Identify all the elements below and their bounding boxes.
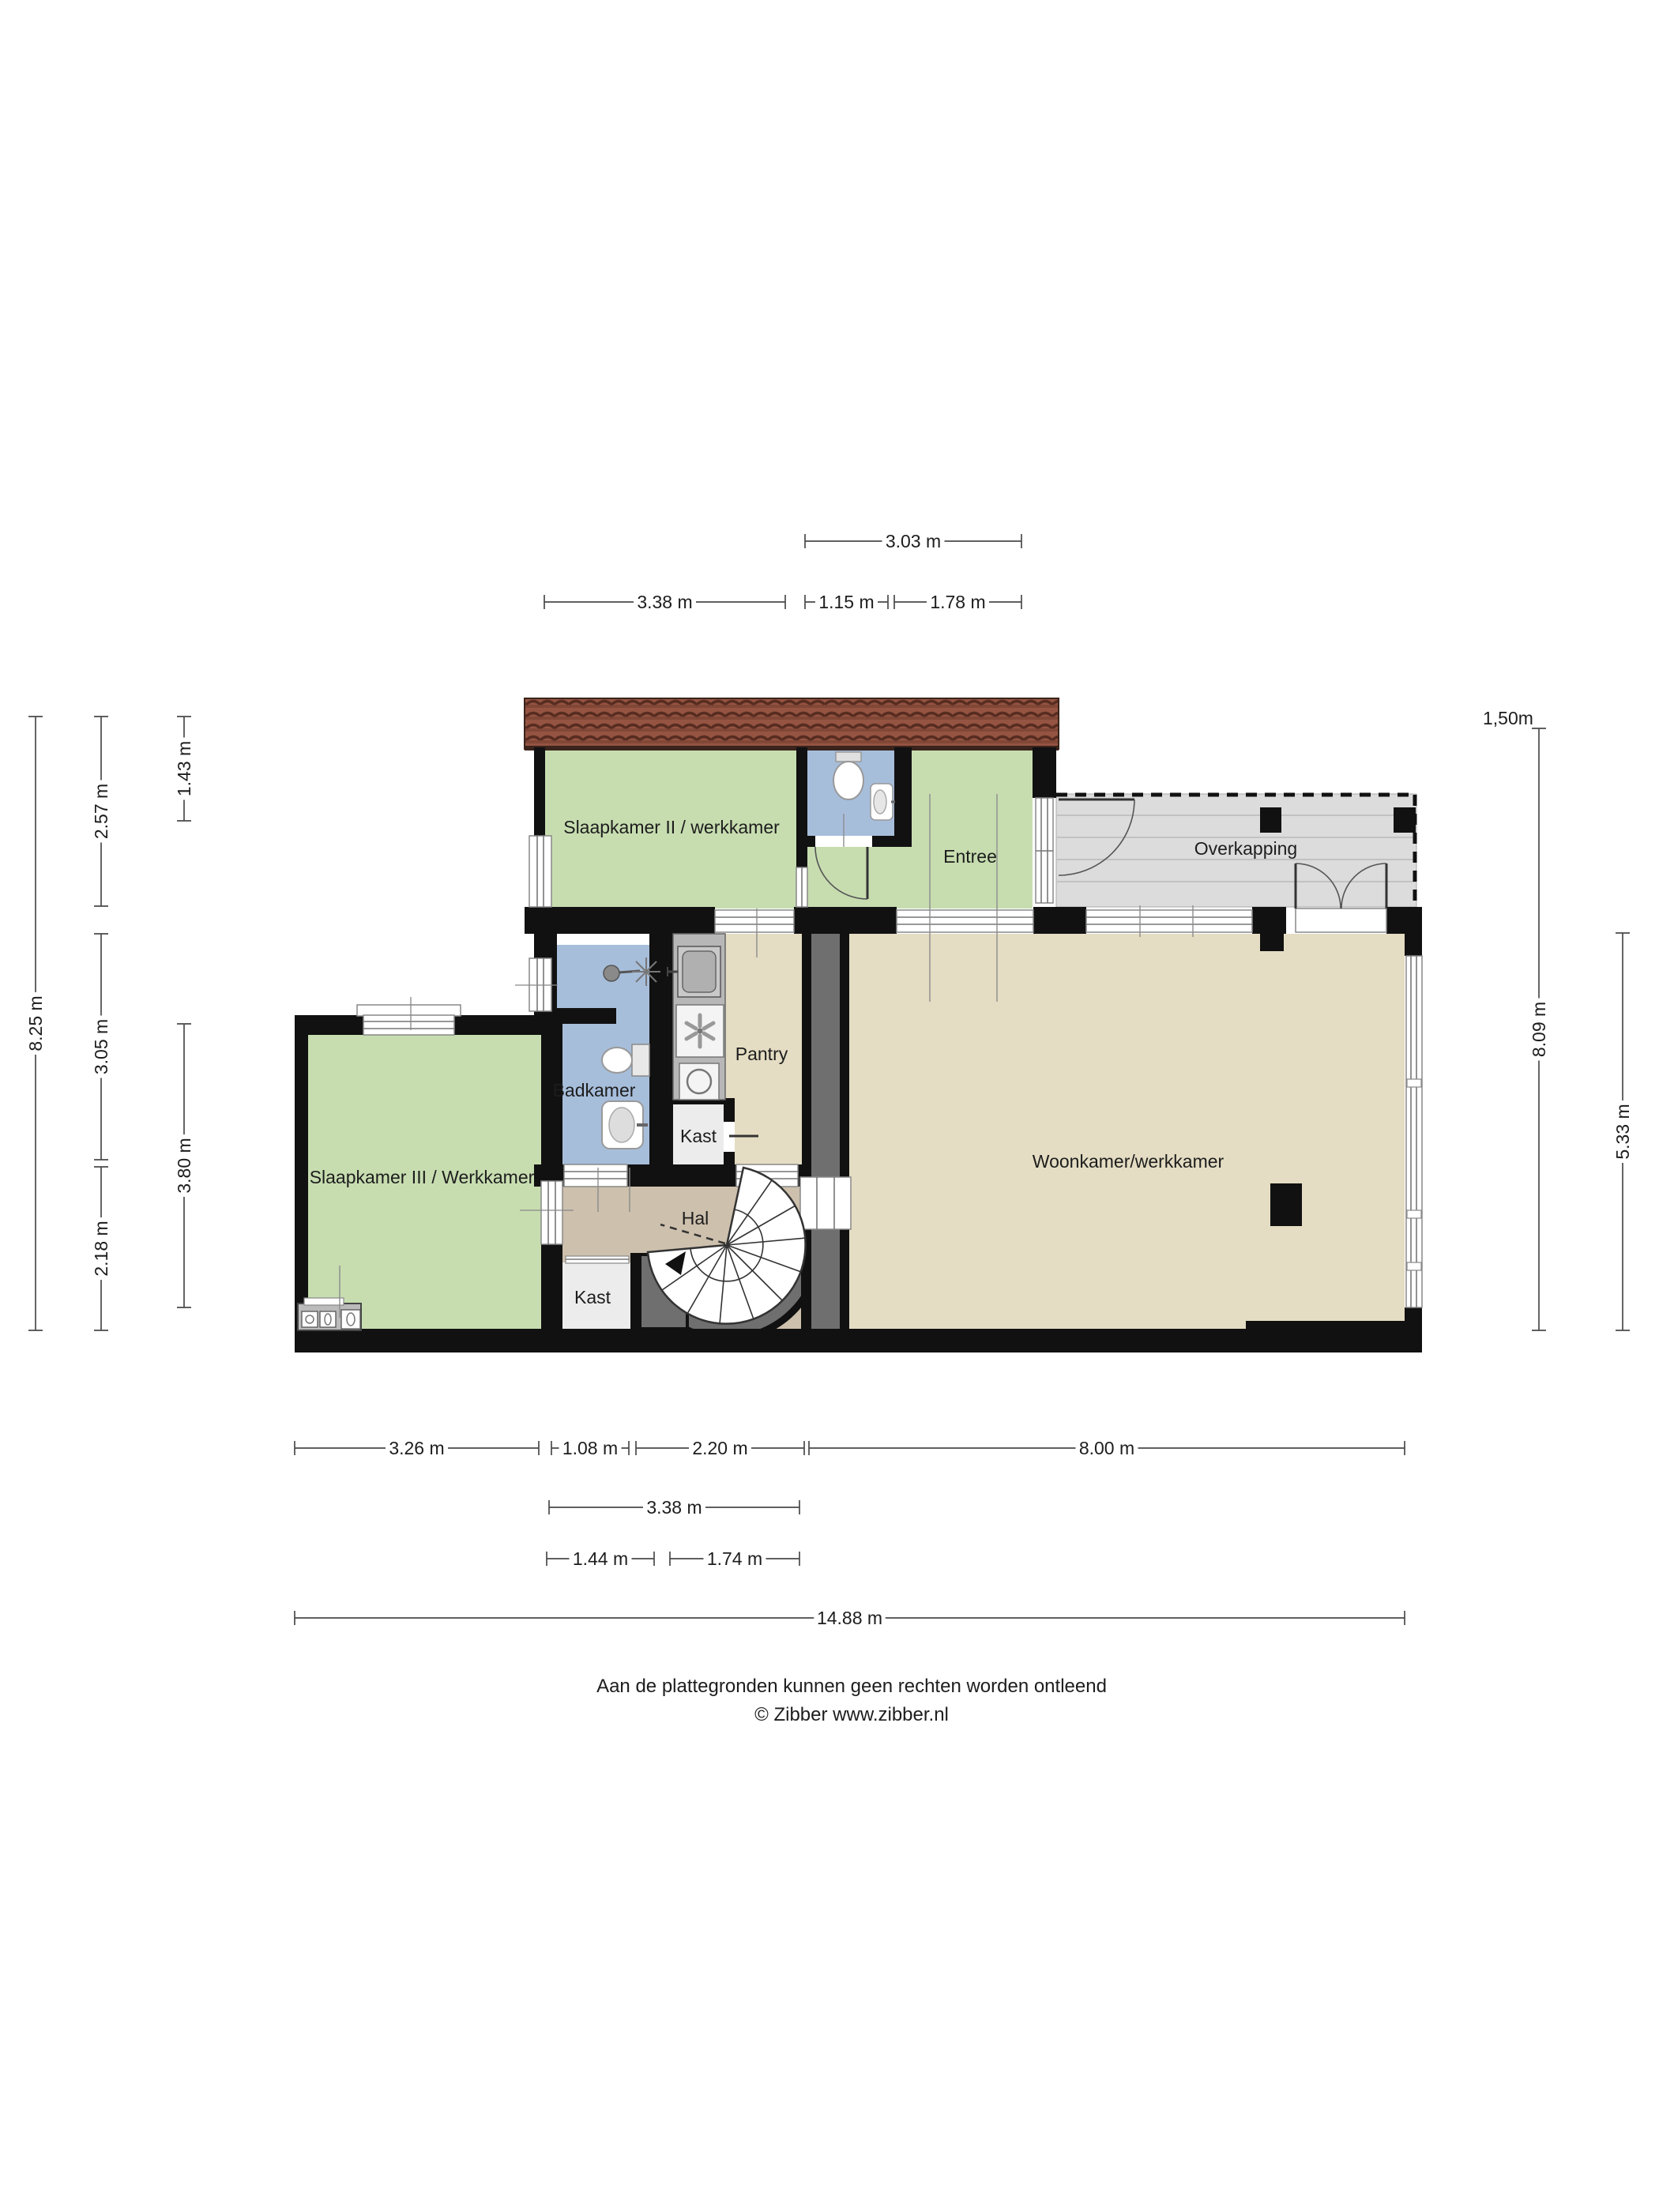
- dimension-3.26m: 3.26 m: [295, 1437, 539, 1459]
- sink-icon: [871, 784, 895, 820]
- room-label-woonkamer: Woonkamer/werkkamer: [1033, 1151, 1224, 1172]
- meter-cabinet: [298, 1298, 361, 1330]
- dim-label: 3.26 m: [389, 1438, 444, 1458]
- cooktop-icon: [676, 1005, 724, 1057]
- dimension-1.78m: 1.78 m: [894, 591, 1021, 613]
- toilet-icon: [602, 1044, 649, 1076]
- room-label-kast-hal: Kast: [574, 1287, 611, 1307]
- dim-label: 8.25 m: [25, 995, 46, 1051]
- dim-label: 3.05 m: [91, 1019, 111, 1074]
- window: [529, 836, 551, 907]
- dim-label: 3.03 m: [886, 531, 941, 551]
- kitchen-counter: [668, 934, 725, 1100]
- canopy-post: [1260, 807, 1281, 833]
- dim-label: 1.15 m: [818, 592, 874, 612]
- dimension-3.05m: 3.05 m: [90, 934, 112, 1160]
- dimension-1.08m: 1.08 m: [551, 1437, 629, 1459]
- footer-copyright: © Zibber www.zibber.nl: [754, 1704, 949, 1725]
- window: [1406, 956, 1422, 1307]
- door-opening: [566, 1256, 629, 1263]
- room-label-hal: Hal: [682, 1208, 709, 1228]
- dimension-3.38m: 3.38 m: [544, 591, 785, 613]
- dimension-5.33m: 5.33 m: [1612, 933, 1634, 1330]
- toilet-icon: [833, 752, 863, 799]
- free-dim-label: 1,50m: [1483, 708, 1533, 728]
- room-label-kast-pantry: Kast: [680, 1126, 717, 1146]
- footer-disclaimer: Aan de plattegronden kunnen geen rechten…: [596, 1676, 1107, 1697]
- dim-label: 8.00 m: [1079, 1438, 1134, 1458]
- dimension-1.43m: 1.43 m: [173, 717, 195, 821]
- room-label-overkapping: Overkapping: [1194, 838, 1297, 859]
- window: [1036, 798, 1053, 903]
- room-label-entree: Entree: [943, 846, 997, 867]
- room-label-slaapkamer3: Slaapkamer III / Werkkamer: [310, 1167, 535, 1187]
- room-entree-b: [807, 847, 912, 908]
- dim-label: 5.33 m: [1612, 1104, 1633, 1159]
- dimension-2.18m: 2.18 m: [90, 1167, 112, 1330]
- appliance-icon: [679, 1063, 719, 1100]
- dimension-2.20m: 2.20 m: [636, 1437, 804, 1459]
- dim-label: 8.09 m: [1529, 1002, 1549, 1057]
- dimension-8.00m: 8.00 m: [809, 1437, 1405, 1459]
- dim-label: 1.08 m: [562, 1438, 618, 1458]
- door-opening: [541, 1181, 562, 1244]
- floor-plan-drawing: Slaapkamer II / werkkamerEntreeOverkappi…: [0, 0, 1659, 2212]
- dimension-3.80m: 3.80 m: [173, 1024, 195, 1307]
- window: [357, 1005, 461, 1035]
- dim-label: 2.57 m: [91, 784, 111, 839]
- dim-label: 3.38 m: [646, 1497, 702, 1518]
- dim-label: 1.78 m: [930, 592, 985, 612]
- dimension-8.09m: 8.09 m: [1528, 728, 1550, 1330]
- dim-label: 1.43 m: [174, 741, 194, 796]
- floorplan-page: Slaapkamer II / werkkamerEntreeOverkappi…: [0, 0, 1659, 2212]
- dim-label: 2.18 m: [91, 1221, 111, 1276]
- dim-label: 3.38 m: [637, 592, 692, 612]
- dim-label: 14.88 m: [817, 1608, 882, 1628]
- shaft-core: [811, 934, 840, 1329]
- sink-icon: [602, 1101, 648, 1149]
- dim-label: 3.80 m: [174, 1138, 194, 1193]
- footer: Aan de plattegronden kunnen geen rechten…: [596, 1676, 1107, 1725]
- dim-label: 1.74 m: [707, 1548, 762, 1569]
- room-label-badkamer: Badkamer: [553, 1080, 636, 1100]
- window: [796, 867, 807, 907]
- dimension-1.74m: 1.74 m: [670, 1548, 799, 1570]
- dimension-2.57m: 2.57 m: [90, 717, 112, 906]
- dimension-8.25m: 8.25 m: [24, 717, 47, 1330]
- canopy-post: [1394, 807, 1416, 833]
- window: [715, 910, 794, 932]
- dim-label: 1.44 m: [573, 1548, 628, 1569]
- room-woonkamer: [849, 934, 1405, 1329]
- room-label-slaapkamer2: Slaapkamer II / werkkamer: [563, 817, 780, 837]
- dimension-14.88m: 14.88 m: [295, 1607, 1405, 1629]
- dimension-1.15m: 1.15 m: [805, 591, 888, 613]
- window: [897, 910, 1033, 932]
- dimension-3.38m: 3.38 m: [549, 1496, 799, 1518]
- door-opening: [800, 1177, 851, 1229]
- dimension-3.03m: 3.03 m: [805, 530, 1021, 552]
- room-label-pantry: Pantry: [735, 1044, 788, 1064]
- pillar: [1270, 1183, 1302, 1226]
- dim-label: 2.20 m: [692, 1438, 747, 1458]
- window: [1086, 905, 1252, 937]
- roof: [525, 698, 1059, 750]
- dimension-1.44m: 1.44 m: [547, 1548, 654, 1570]
- door-opening: [564, 1164, 627, 1187]
